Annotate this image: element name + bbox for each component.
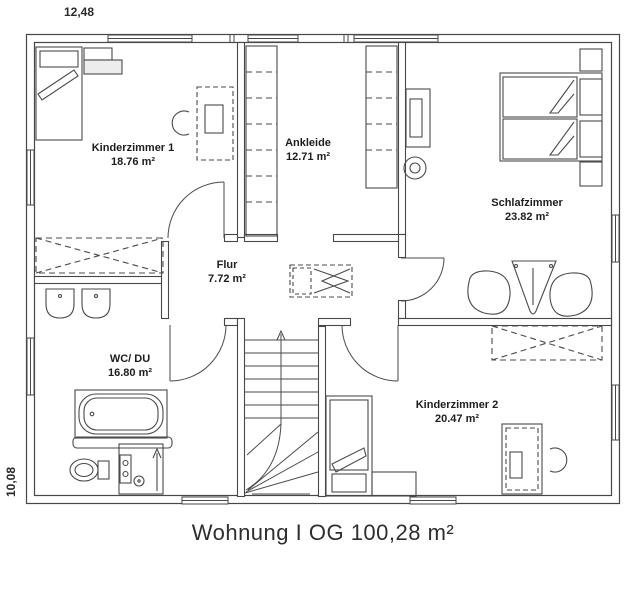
door-schlafzimmer — [401, 258, 444, 301]
window — [108, 35, 192, 42]
room-label-wc-du: WC/ DU 16.80 m² — [70, 352, 190, 380]
room-name: Kinderzimmer 1 — [92, 142, 175, 154]
desk-chair-symbol-schlafzimmer — [404, 89, 430, 179]
floor-plan-page: Kinderzimmer 1 18.76 m² Ankleide 12.71 m… — [0, 0, 644, 607]
shelf-symbol-kz1 — [84, 48, 122, 74]
bed-symbol-kz1 — [36, 47, 82, 140]
room-label-ankleide: Ankleide 12.71 m² — [248, 136, 368, 164]
cabinet-symbol-flur — [290, 265, 352, 297]
door-kinderzimmer1 — [168, 182, 224, 238]
dimension-width: 12,48 — [64, 5, 94, 19]
room-area: 23.82 m² — [447, 210, 607, 224]
room-area: 7.72 m² — [167, 272, 287, 286]
window — [248, 35, 298, 42]
seating-group-symbol — [468, 261, 592, 316]
wardrobe-symbol-kz1 — [36, 238, 163, 273]
window — [182, 497, 228, 504]
room-name: Schlafzimmer — [491, 197, 563, 209]
window — [612, 215, 619, 262]
dimension-height: 10,08 — [4, 457, 18, 497]
room-label-flur: Flur 7.72 m² — [167, 258, 287, 286]
room-area: 16.80 m² — [70, 366, 190, 380]
room-label-kinderzimmer1: Kinderzimmer 1 18.76 m² — [53, 141, 213, 169]
window — [410, 497, 456, 504]
toilet-symbol — [70, 459, 109, 481]
room-name: Kinderzimmer 2 — [416, 399, 499, 411]
room-area: 18.76 m² — [53, 155, 213, 169]
door-kinderzimmer2 — [342, 325, 398, 381]
window — [612, 385, 619, 440]
wardrobe-symbol-kz2 — [492, 326, 602, 360]
sink-symbols — [46, 289, 110, 318]
room-area: 20.47 m² — [377, 412, 537, 426]
double-bed-symbol — [500, 49, 602, 186]
room-area: 12.71 m² — [248, 150, 368, 164]
shower-symbol — [119, 444, 163, 494]
room-name: Flur — [217, 259, 238, 271]
plan-caption: Wohnung I OG 100,28 m² — [26, 520, 620, 546]
room-label-kinderzimmer2: Kinderzimmer 2 20.47 m² — [377, 398, 537, 426]
floor-plan-drawing — [0, 0, 644, 607]
window — [27, 338, 34, 395]
room-name: WC/ DU — [110, 353, 150, 365]
bathtub-symbol — [73, 390, 172, 448]
staircase — [244, 331, 318, 494]
window — [27, 150, 34, 205]
room-label-schlafzimmer: Schlafzimmer 23.82 m² — [447, 196, 607, 224]
desk-chair-symbol-kz2 — [502, 424, 567, 494]
room-name: Ankleide — [285, 137, 331, 149]
window — [354, 35, 438, 42]
